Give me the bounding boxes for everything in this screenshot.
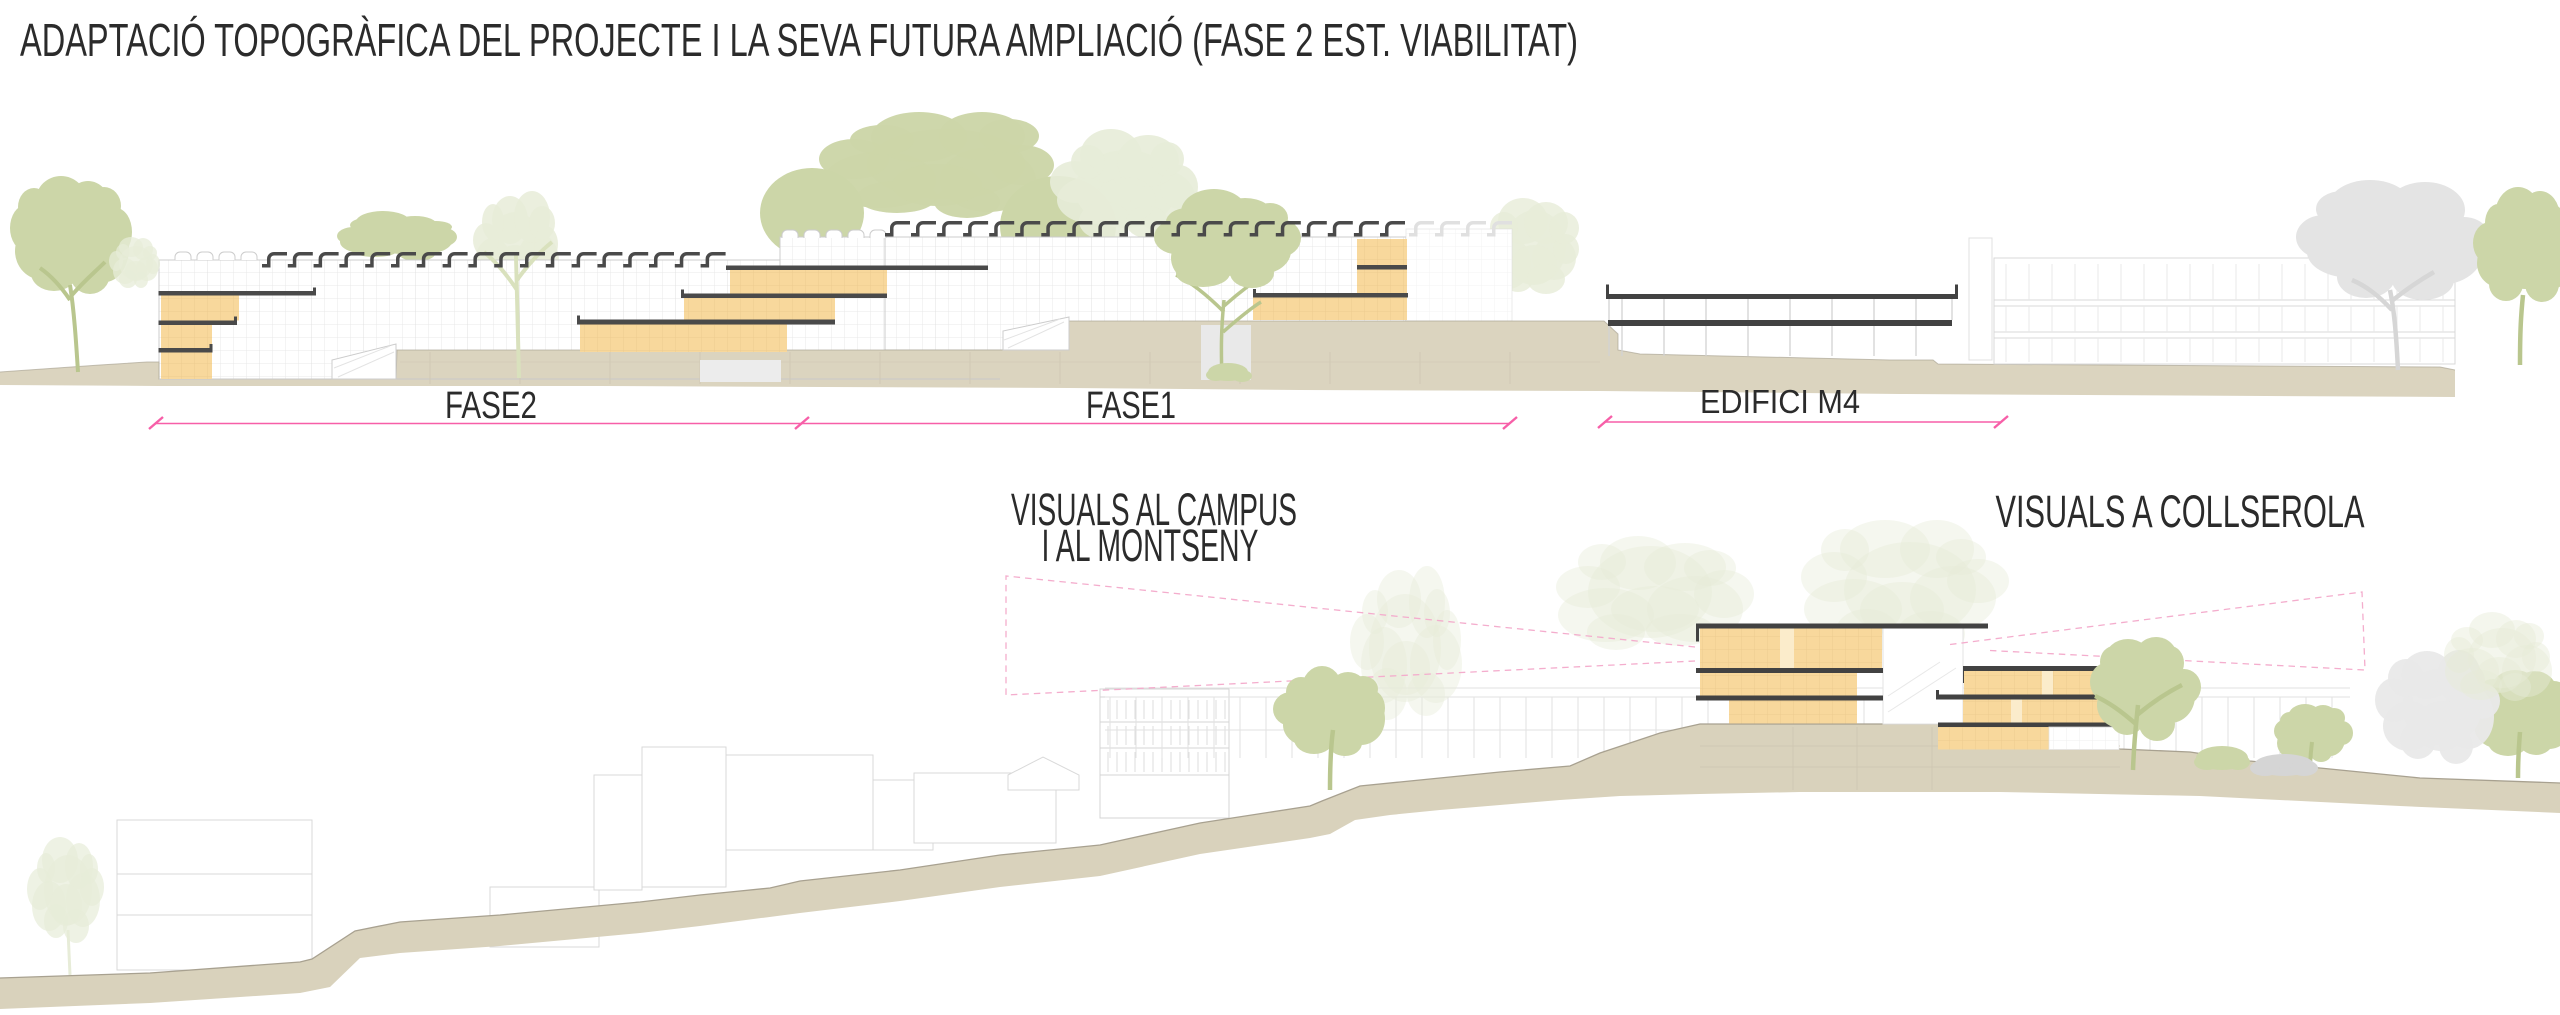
svg-text:FASE2: FASE2 [445,385,537,427]
svg-text:VISUALS A COLLSEROLA: VISUALS A COLLSEROLA [1996,486,2365,537]
svg-text:FASE1: FASE1 [1086,385,1176,427]
svg-text:ADAPTACIÓ TOPOGRÀFICA DEL PROJ: ADAPTACIÓ TOPOGRÀFICA DEL PROJECTE I LA … [20,14,1578,66]
svg-text:EDIFICI M4: EDIFICI M4 [1700,383,1860,420]
svg-text:I AL MONTSENY: I AL MONTSENY [1042,520,1259,571]
